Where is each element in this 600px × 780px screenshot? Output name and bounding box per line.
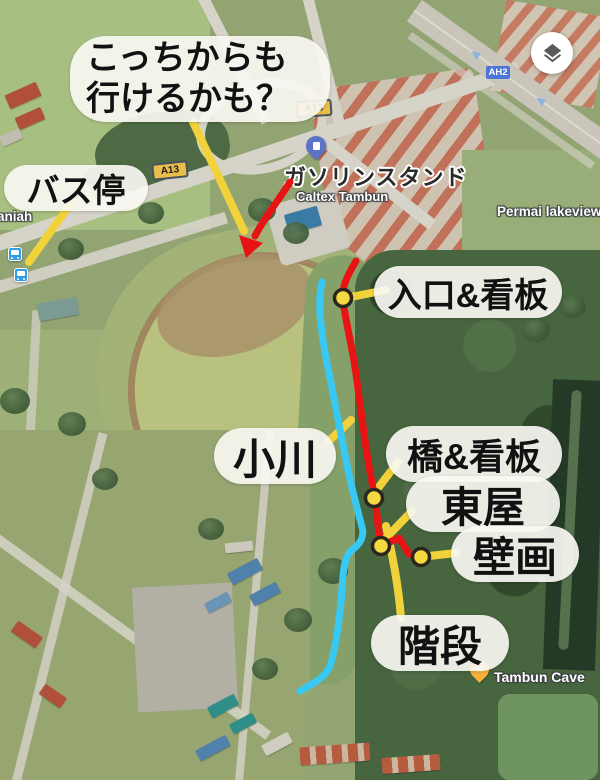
label-mural: 壁画 (451, 526, 579, 582)
label-stairs: 階段 (371, 615, 509, 671)
label-stream: 小川 (214, 428, 336, 484)
layers-button[interactable] (531, 32, 573, 74)
speech-bubble-alt-route: こっちからも 行けるかも？ (70, 36, 330, 122)
red-arrowhead (239, 235, 263, 258)
red-arrow-alt-route (255, 182, 290, 236)
map-screenshot: ガソリンスタンド Caltex Tambun Permai lakeview a… (0, 0, 600, 780)
marker-mural (413, 549, 430, 566)
arrow-from-speech-bubble (193, 122, 244, 231)
label-bus-stop: バス停 (4, 165, 148, 211)
label-entrance: 入口&看板 (374, 266, 562, 318)
marker-gazebo (373, 538, 390, 555)
layers-icon (541, 42, 564, 65)
marker-bridge (366, 490, 383, 507)
speech-bubble-line2: 行けるかも？ (86, 79, 290, 120)
marker-entrance (335, 290, 352, 307)
speech-bubble-line1: こっちからも (86, 38, 288, 79)
